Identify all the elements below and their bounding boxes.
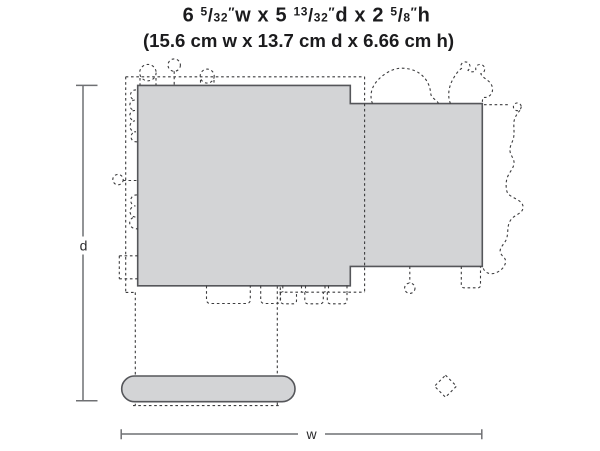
svg-text:d: d — [80, 238, 88, 254]
svg-text:(15.6 cm w x 13.7 cm d x 6.66: (15.6 cm w x 13.7 cm d x 6.66 cm h) — [143, 30, 454, 51]
svg-text:w: w — [305, 426, 317, 442]
